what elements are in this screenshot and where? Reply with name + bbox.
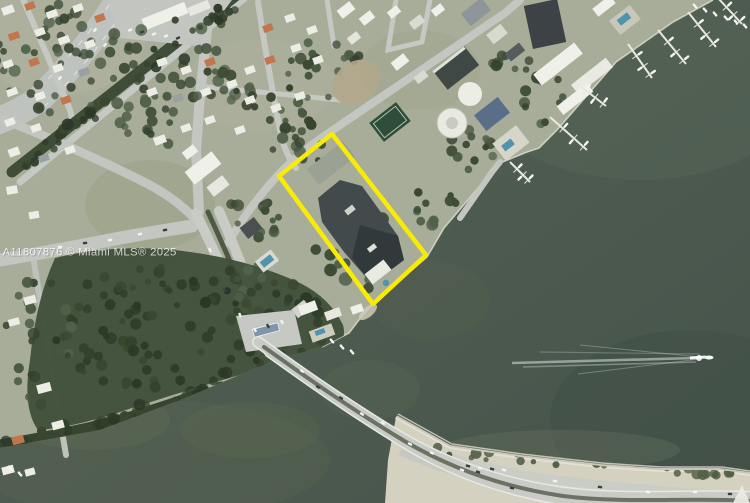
- pool: [383, 280, 389, 286]
- watermark: A11807876 © Miami MLS® 2025 A11807876 © …: [3, 247, 178, 260]
- listing-photo[interactable]: A11807876 © Miami MLS® 2025 A11807876 © …: [0, 0, 750, 503]
- boat: [705, 356, 714, 360]
- satellite-map: A11807876 © Miami MLS® 2025 A11807876 © …: [0, 0, 750, 503]
- svg-text:A11807876 © Miami MLS® 2025: A11807876 © Miami MLS® 2025: [3, 247, 177, 259]
